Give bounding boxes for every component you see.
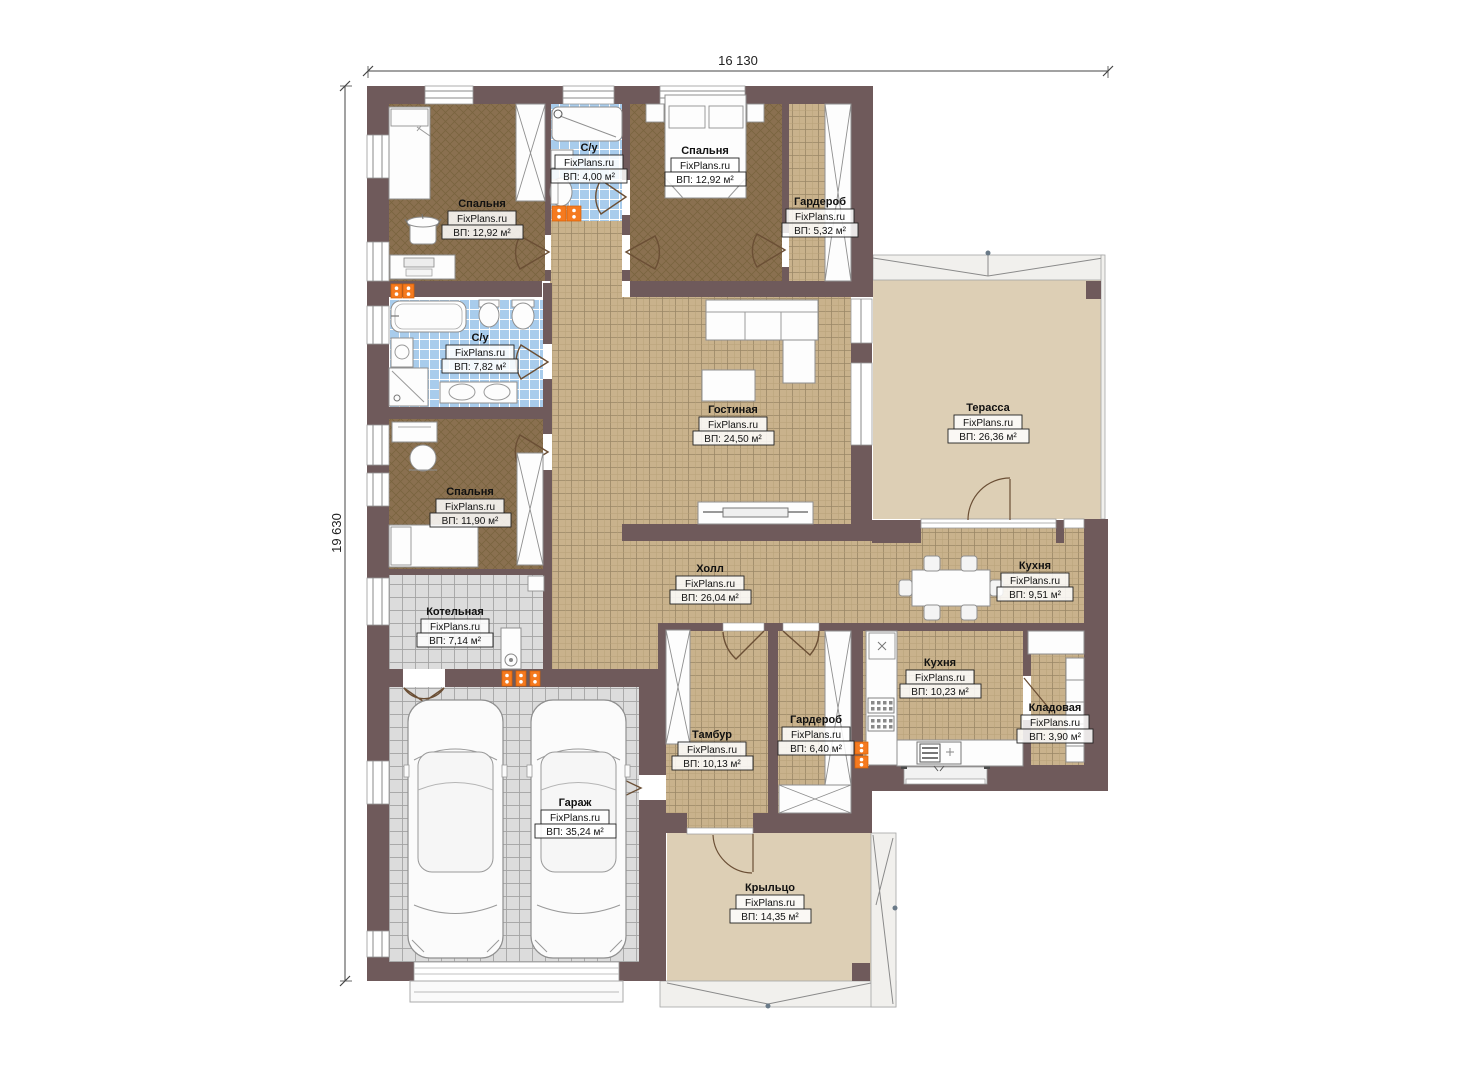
svg-text:FixPlans.ru: FixPlans.ru	[550, 813, 600, 824]
svg-text:ВП: 26,36 м²: ВП: 26,36 м²	[959, 432, 1017, 443]
svg-text:Спальня: Спальня	[681, 145, 729, 157]
svg-text:ВП: 10,23 м²: ВП: 10,23 м²	[911, 687, 969, 698]
svg-text:Холл: Холл	[696, 563, 724, 575]
svg-text:Гардероб: Гардероб	[794, 196, 846, 208]
svg-text:ВП: 26,04 м²: ВП: 26,04 м²	[681, 593, 739, 604]
svg-text:FixPlans.ru: FixPlans.ru	[745, 898, 795, 909]
svg-text:Гараж: Гараж	[559, 797, 592, 809]
svg-text:FixPlans.ru: FixPlans.ru	[445, 502, 495, 513]
svg-text:Кладовая: Кладовая	[1029, 702, 1082, 714]
svg-text:ВП: 9,51 м²: ВП: 9,51 м²	[1009, 590, 1062, 601]
svg-text:FixPlans.ru: FixPlans.ru	[564, 158, 614, 169]
svg-text:FixPlans.ru: FixPlans.ru	[430, 622, 480, 633]
svg-text:С/у: С/у	[580, 142, 598, 154]
svg-text:ВП: 7,14 м²: ВП: 7,14 м²	[429, 636, 482, 647]
svg-text:ВП: 12,92 м²: ВП: 12,92 м²	[676, 175, 734, 186]
svg-text:Котельная: Котельная	[426, 606, 484, 618]
svg-text:Тамбур: Тамбур	[692, 729, 732, 741]
svg-text:Гардероб: Гардероб	[790, 714, 842, 726]
svg-text:FixPlans.ru: FixPlans.ru	[687, 745, 737, 756]
svg-text:ВП: 6,40 м²: ВП: 6,40 м²	[790, 744, 843, 755]
svg-text:ВП: 5,32 м²: ВП: 5,32 м²	[794, 226, 847, 237]
svg-text:FixPlans.ru: FixPlans.ru	[1030, 718, 1080, 729]
svg-text:С/у: С/у	[471, 332, 489, 344]
svg-text:ВП: 10,13 м²: ВП: 10,13 м²	[683, 759, 741, 770]
svg-text:Спальня: Спальня	[458, 198, 506, 210]
svg-text:Терасса: Терасса	[966, 402, 1010, 414]
svg-text:FixPlans.ru: FixPlans.ru	[455, 348, 505, 359]
svg-text:ВП: 35,24 м²: ВП: 35,24 м²	[546, 827, 604, 838]
svg-text:FixPlans.ru: FixPlans.ru	[915, 673, 965, 684]
svg-text:ВП: 11,90 м²: ВП: 11,90 м²	[442, 516, 499, 527]
svg-text:ВП: 7,82 м²: ВП: 7,82 м²	[454, 362, 507, 373]
svg-text:FixPlans.ru: FixPlans.ru	[795, 212, 845, 223]
svg-text:ВП: 12,92 м²: ВП: 12,92 м²	[453, 228, 511, 239]
svg-text:FixPlans.ru: FixPlans.ru	[685, 579, 735, 590]
svg-text:19 630: 19 630	[329, 513, 344, 553]
svg-text:FixPlans.ru: FixPlans.ru	[1010, 576, 1060, 587]
svg-text:Спальня: Спальня	[446, 486, 494, 498]
svg-text:FixPlans.ru: FixPlans.ru	[457, 214, 507, 225]
svg-text:ВП: 24,50 м²: ВП: 24,50 м²	[704, 434, 762, 445]
svg-text:FixPlans.ru: FixPlans.ru	[791, 730, 841, 741]
svg-text:ВП: 4,00 м²: ВП: 4,00 м²	[563, 172, 616, 183]
svg-text:Гостиная: Гостиная	[708, 404, 758, 416]
svg-text:ВП: 3,90 м²: ВП: 3,90 м²	[1029, 732, 1082, 743]
svg-text:ВП: 14,35 м²: ВП: 14,35 м²	[741, 912, 799, 923]
svg-text:FixPlans.ru: FixPlans.ru	[963, 418, 1013, 429]
svg-text:Крыльцо: Крыльцо	[745, 882, 795, 894]
svg-text:Кухня: Кухня	[1019, 560, 1051, 572]
svg-text:FixPlans.ru: FixPlans.ru	[680, 161, 730, 172]
svg-text:FixPlans.ru: FixPlans.ru	[708, 420, 758, 431]
svg-text:Кухня: Кухня	[924, 657, 956, 669]
svg-text:16 130: 16 130	[718, 53, 758, 68]
